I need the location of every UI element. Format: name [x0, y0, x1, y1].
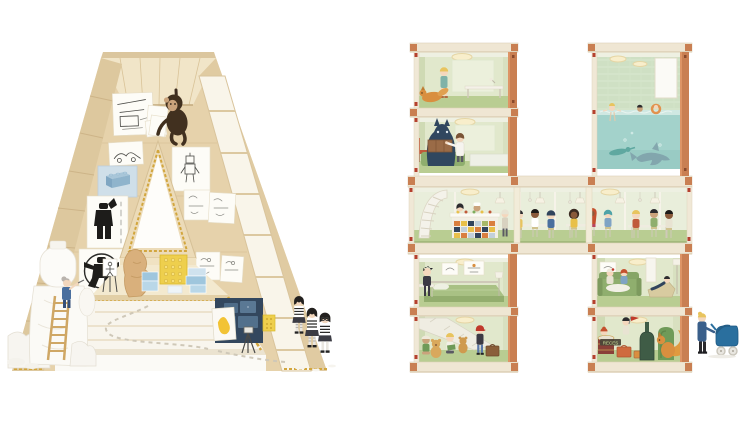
pool-window: [655, 58, 677, 98]
bed: [424, 282, 504, 302]
artwork-robot: [172, 147, 210, 191]
artwork-sketch-cluster: [184, 190, 236, 224]
pram-parent: [698, 312, 715, 354]
room-top-left-upper: [417, 52, 511, 108]
suitcase-brown: [486, 345, 499, 357]
pram-shadow: [708, 355, 736, 359]
a-top-fascia: [101, 52, 216, 58]
room-crossbar: [414, 187, 688, 243]
bench: [470, 154, 508, 166]
wooden-crate: [428, 140, 452, 152]
crossbar-mullion-left: [514, 187, 520, 243]
sofa: [598, 272, 642, 296]
striped-kid-3: [318, 313, 332, 353]
recess-sign-text: RECES: [603, 340, 619, 345]
artwork-minifig-poster: [87, 196, 128, 248]
crossbar-mullion-right: [586, 187, 592, 243]
room-music: RECES: [597, 316, 686, 362]
recess-sign: RECES: [600, 339, 621, 346]
room-pool: [597, 52, 681, 169]
bedroom-poster-1: [442, 263, 458, 275]
room-bedroom: [416, 258, 511, 307]
artwork-car-sketch: [108, 141, 143, 166]
room-playroom: [417, 316, 511, 362]
tall-mirror: [646, 258, 656, 282]
scene-canvas: Letter-shaped playhouses: wooden letter …: [0, 0, 750, 421]
artwork-blue-brick: [98, 166, 137, 197]
h-structure: RECES: [408, 43, 738, 373]
yellow-plate: [160, 255, 187, 284]
pram: [711, 324, 738, 355]
room-top-left-lower: [417, 117, 511, 173]
room-lounge: [597, 258, 681, 307]
a-structure: [7, 52, 336, 371]
